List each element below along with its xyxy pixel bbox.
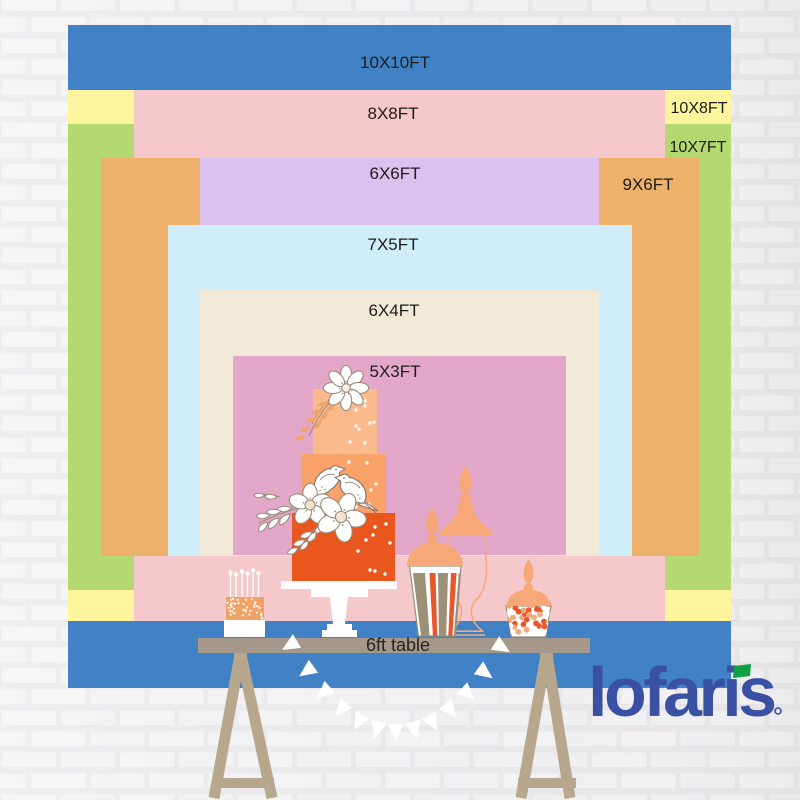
svg-text:9X6FT: 9X6FT — [622, 175, 673, 194]
svg-text:10X7FT: 10X7FT — [670, 139, 727, 156]
svg-text:6X4FT: 6X4FT — [368, 301, 419, 320]
svg-text:10X8FT: 10X8FT — [671, 100, 728, 117]
svg-text:6X6FT: 6X6FT — [369, 164, 420, 183]
svg-text:7X5FT: 7X5FT — [367, 235, 418, 254]
svg-text:5X3FT: 5X3FT — [369, 362, 420, 381]
svg-text:10X10FT: 10X10FT — [360, 53, 430, 72]
svg-text:6ft table: 6ft table — [366, 635, 430, 655]
svg-text:8X8FT: 8X8FT — [367, 104, 418, 123]
